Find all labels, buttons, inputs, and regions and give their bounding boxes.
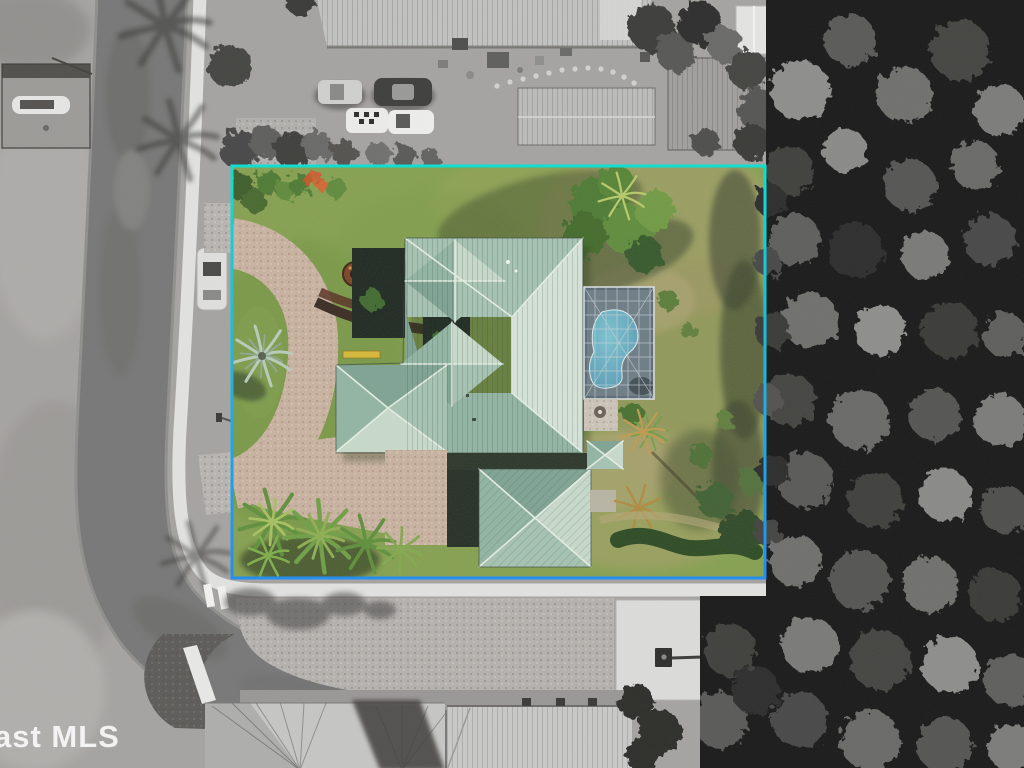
photo-grain bbox=[0, 0, 1024, 768]
aerial-photo-stage: ast MLS bbox=[0, 0, 1024, 768]
mls-watermark: ast MLS bbox=[0, 719, 120, 754]
aerial-photo: ast MLS bbox=[0, 0, 1024, 768]
